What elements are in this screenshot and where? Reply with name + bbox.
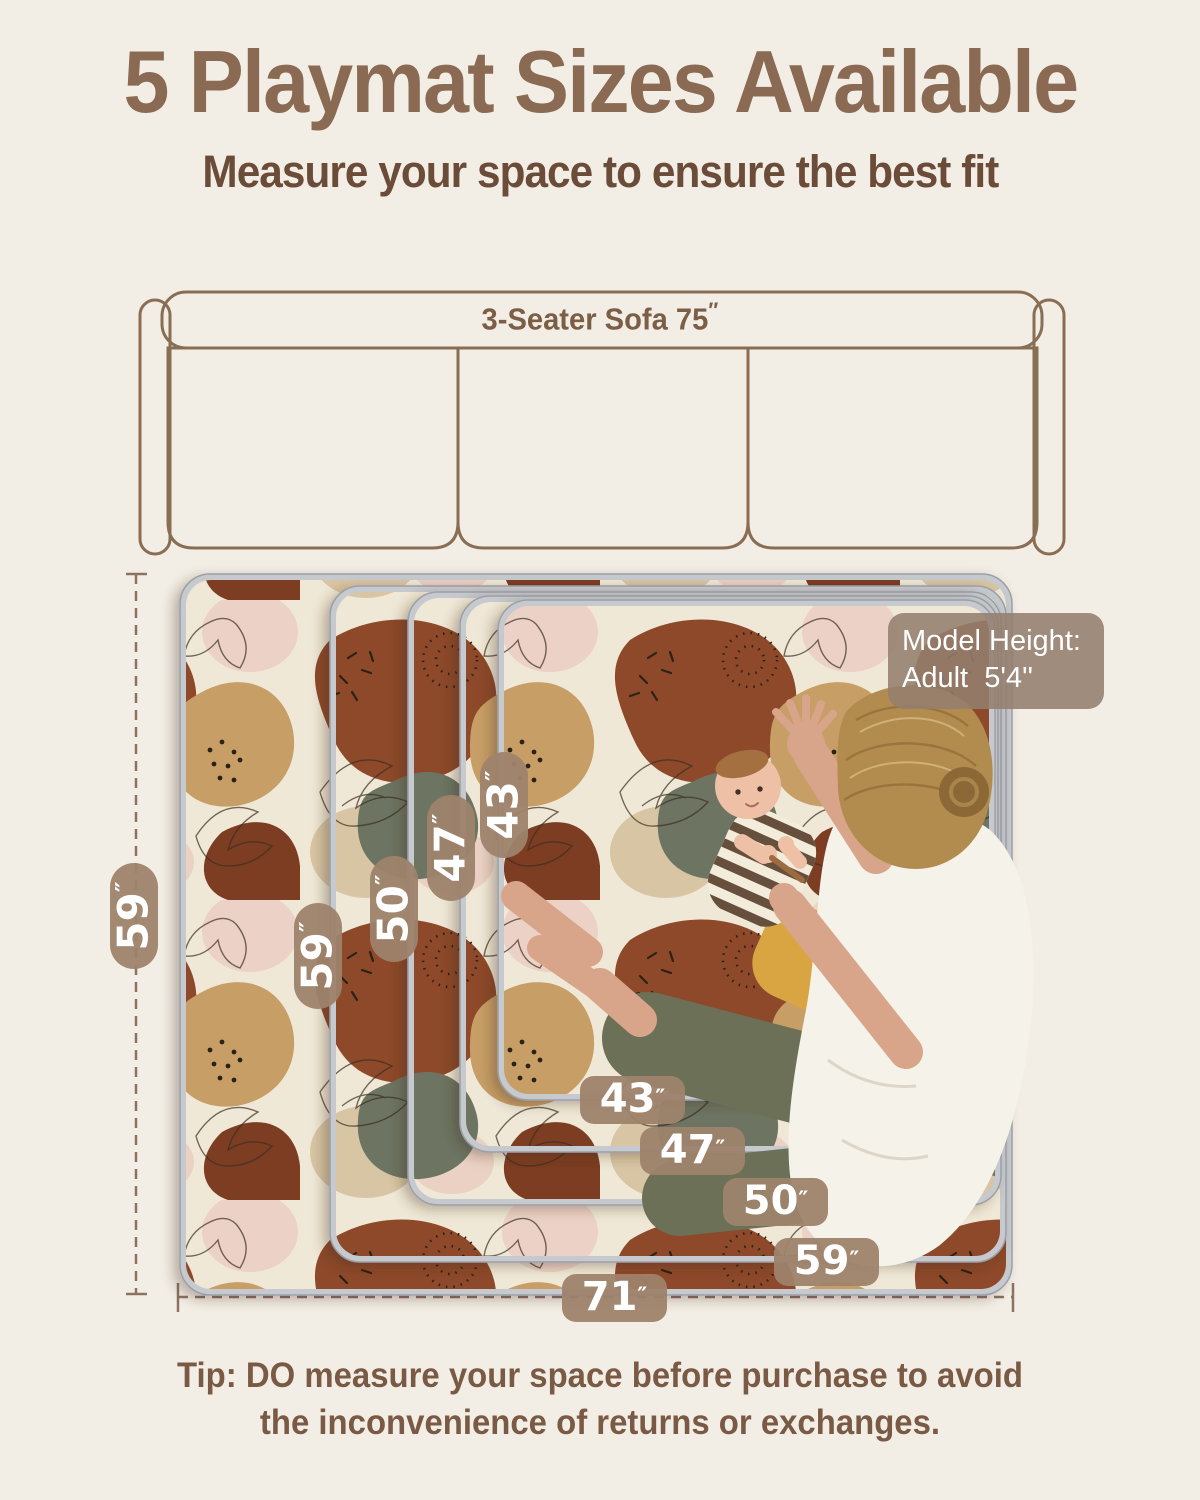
mat-height-label-43: 43″ [480,752,528,858]
overall-width-label: 71″ [562,1274,667,1322]
overall-height-label: 59″ [110,863,158,969]
mat-height-label-59: 59″ [294,903,342,1009]
mat-height-label-50: 50″ [370,856,418,962]
mat-width-label-50: 50″ [723,1178,828,1226]
sofa-label: 3-Seater Sofa 75″ [0,298,1200,337]
inch-mark: ″ [708,298,718,323]
playmat-size-infographic: 5 Playmat Sizes Available Measure your s… [0,0,1200,1500]
mat-width-label-43: 43″ [580,1076,685,1124]
mat-width-label-47: 47″ [640,1127,745,1175]
tip-text: Tip: DO measure your space before purcha… [0,1352,1200,1446]
page-subtitle: Measure your space to ensure the best fi… [0,146,1200,198]
page-title: 5 Playmat Sizes Available [0,36,1200,128]
mat-height-label-47: 47″ [427,795,475,901]
model-height-badge: Model Height: Adult 5'4'' [888,613,1104,709]
mat-width-label-59: 59″ [774,1238,879,1286]
woman-head [837,685,992,869]
